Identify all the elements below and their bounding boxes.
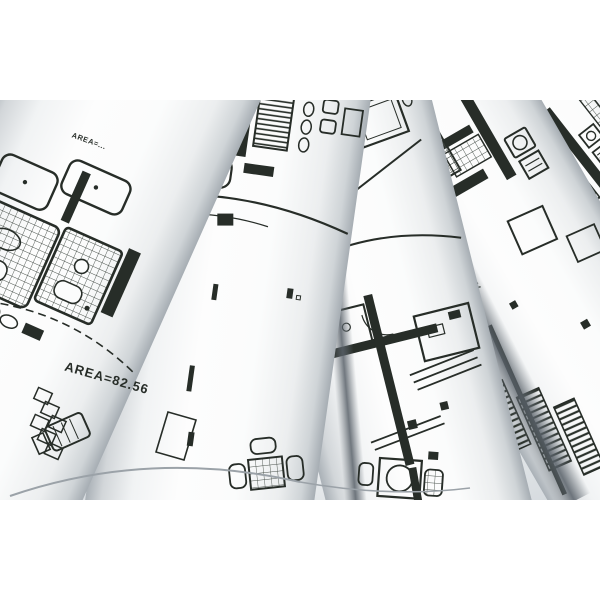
blueprint-rolls-illustration: AREA=... bbox=[0, 100, 600, 500]
photo-page: AREA=... bbox=[0, 0, 600, 601]
blueprint-photo: AREA=... bbox=[0, 100, 600, 500]
stair-hatch-block bbox=[253, 100, 295, 151]
